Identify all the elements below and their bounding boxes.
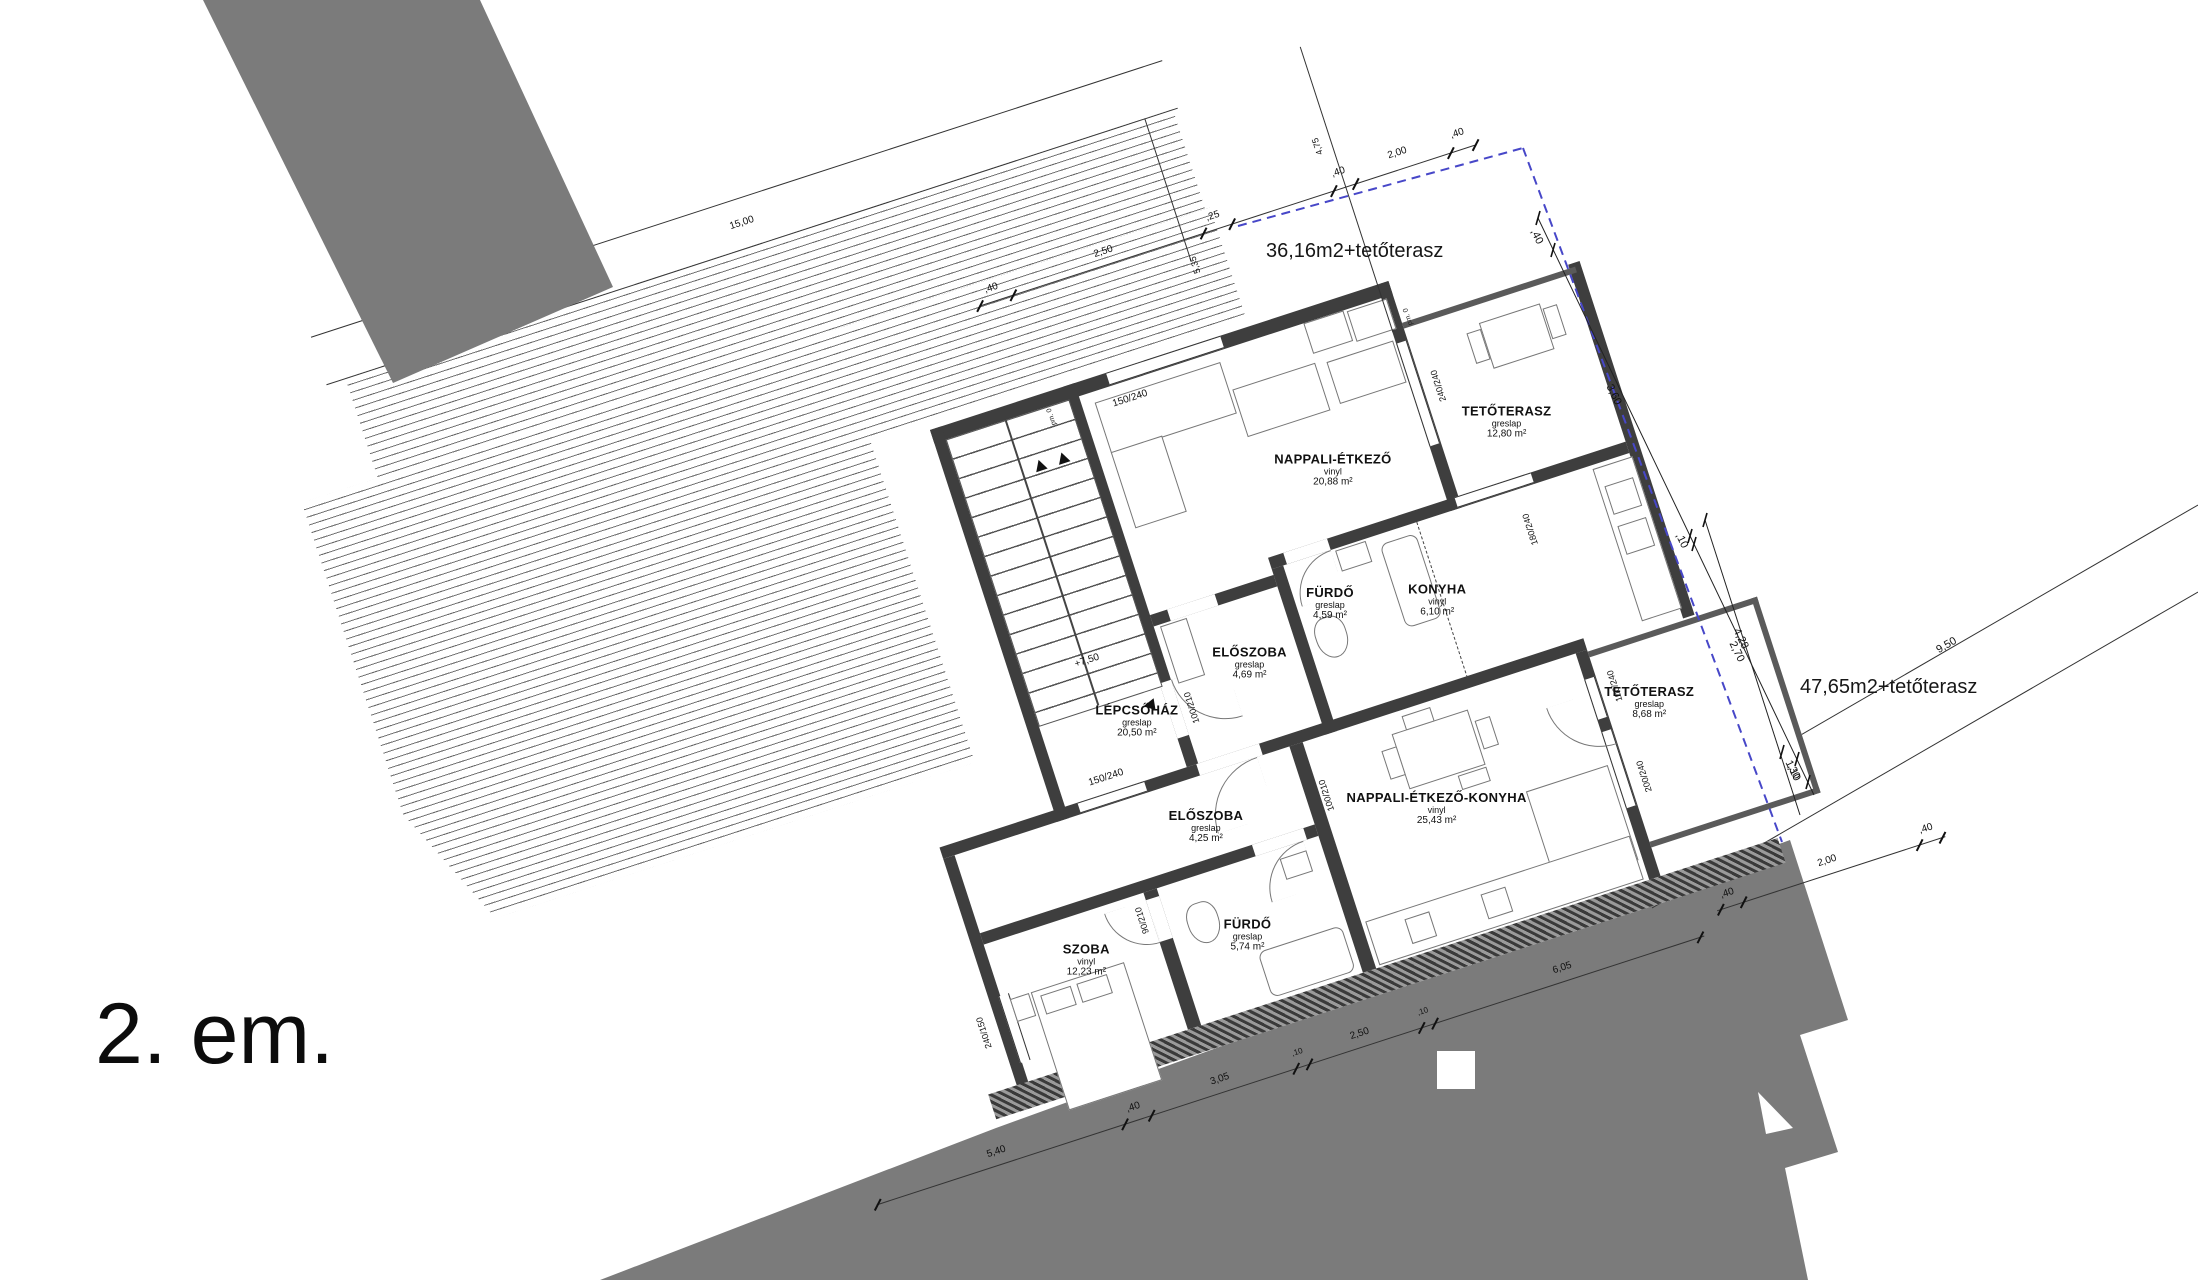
dim-line-right xyxy=(1538,218,1814,795)
dim-label: 3,60 xyxy=(1604,382,1624,407)
dim-tick xyxy=(1536,211,1540,225)
unit-area-note-top: 36,16m2+tetőterasz xyxy=(1266,240,1443,263)
neighbor-building-mass-top xyxy=(203,0,613,383)
dim-tick xyxy=(1806,775,1810,789)
dim-label: ,10 xyxy=(1673,531,1690,550)
dim-line-right-2 xyxy=(1705,520,1800,815)
unit-area-note-right: 47,65m2+tetőterasz xyxy=(1800,676,1977,699)
dim-label: ,40 xyxy=(1528,227,1545,246)
overlay-layer: ,40 3,60 ,10 2,70 ,30 4,28 1,10 xyxy=(0,0,2198,1280)
dim-tick xyxy=(1780,745,1784,759)
floor-title: 2. em. xyxy=(95,985,334,1084)
cursor-artifact xyxy=(1758,1092,1793,1134)
terrace-boundary-dashed-right xyxy=(1523,148,1782,842)
terrace-boundary-dashed-top xyxy=(1238,148,1523,226)
dim-tick xyxy=(1692,537,1696,551)
roof-skylight xyxy=(1437,1051,1475,1089)
floor-plan-canvas: 9,50 15,00 5,35 xyxy=(0,0,2198,1280)
dim-tick xyxy=(1551,243,1555,257)
